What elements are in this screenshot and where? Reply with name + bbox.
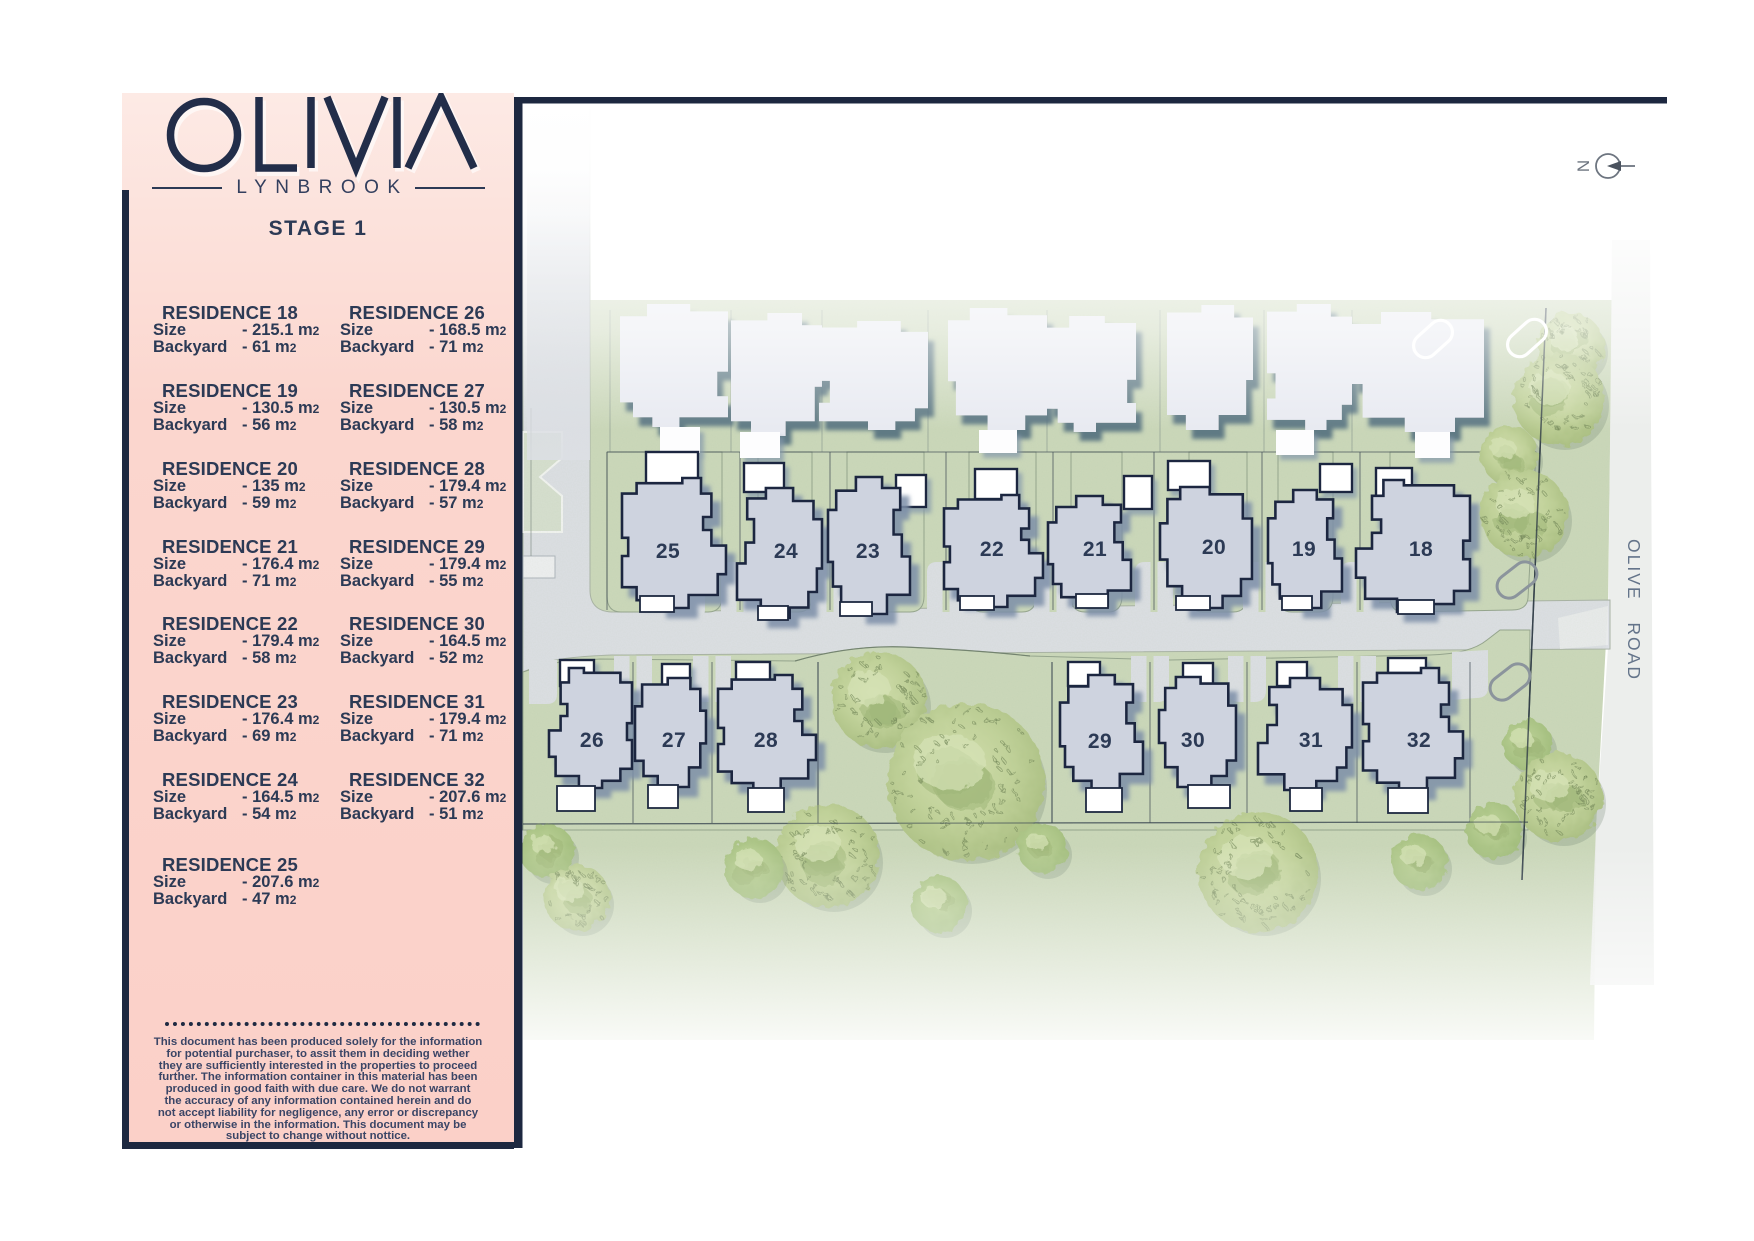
svg-text:18: 18	[1409, 538, 1433, 561]
svg-text:20: 20	[1202, 536, 1226, 559]
svg-text:22: 22	[980, 538, 1004, 561]
svg-text:23: 23	[856, 540, 880, 563]
svg-text:25: 25	[656, 540, 680, 563]
svg-text:27: 27	[662, 729, 686, 752]
svg-text:31: 31	[1299, 729, 1323, 752]
svg-text:19: 19	[1292, 538, 1316, 561]
svg-text:21: 21	[1083, 538, 1107, 561]
svg-text:26: 26	[580, 729, 604, 752]
svg-text:N: N	[1574, 160, 1593, 172]
svg-text:OLIVE ROAD: OLIVE ROAD	[1624, 539, 1644, 681]
svg-text:30: 30	[1181, 729, 1205, 752]
svg-text:32: 32	[1407, 729, 1431, 752]
svg-text:24: 24	[774, 540, 798, 563]
svg-text:28: 28	[754, 729, 778, 752]
svg-text:29: 29	[1088, 730, 1112, 753]
